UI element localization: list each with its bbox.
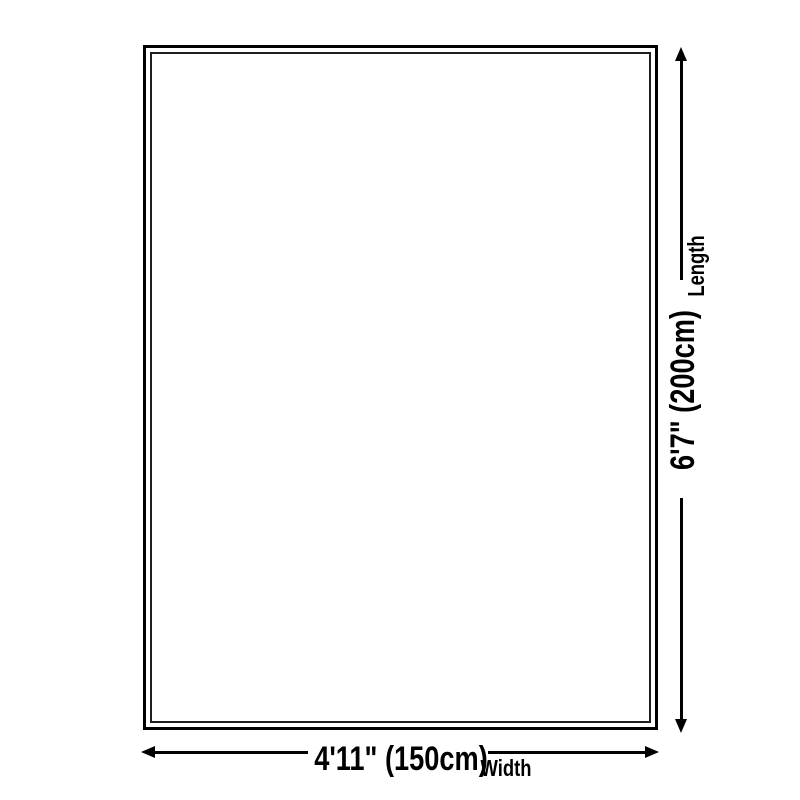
width-arrow-line-right xyxy=(488,751,646,754)
length-dimension-value: 6'7" (200cm) xyxy=(661,262,705,518)
product-outline-outer xyxy=(143,45,658,730)
width-axis-label: Width xyxy=(458,756,554,780)
arrow-right-icon xyxy=(645,746,659,758)
dimension-diagram: Length 6'7" (200cm) 4'11" (150cm) Width xyxy=(0,0,800,800)
product-outline-inner xyxy=(150,52,651,723)
arrow-down-icon xyxy=(675,719,687,733)
length-arrow-line-bottom xyxy=(680,498,683,722)
